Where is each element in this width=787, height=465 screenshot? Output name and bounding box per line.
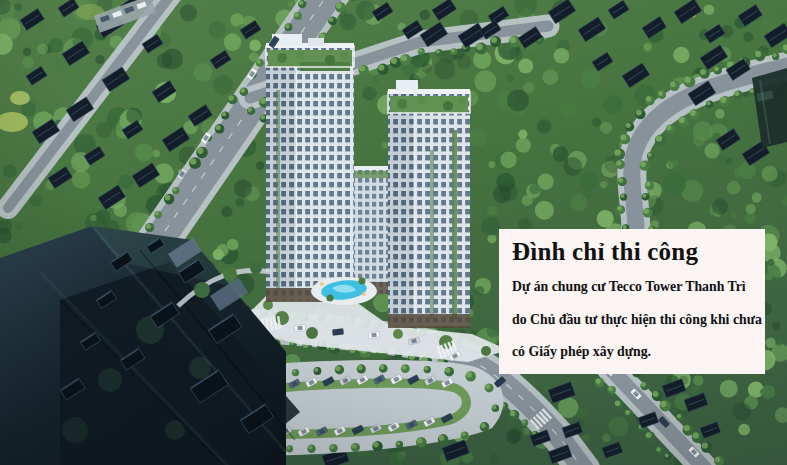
announcement-title: Đình chỉ thi công	[512, 238, 752, 267]
announcement-line-1: Dự án chung cư Tecco Tower Thanh Trì	[512, 280, 752, 294]
announcement-line-2: do Chủ đầu tư thực hiện thi công khi chư…	[512, 313, 752, 327]
announcement-box: Đình chỉ thi công Dự án chung cư Tecco T…	[499, 229, 765, 374]
screenshot-root: Đình chỉ thi công Dự án chung cư Tecco T…	[0, 0, 787, 465]
announcement-line-3: có Giấy phép xây dựng.	[512, 345, 752, 359]
